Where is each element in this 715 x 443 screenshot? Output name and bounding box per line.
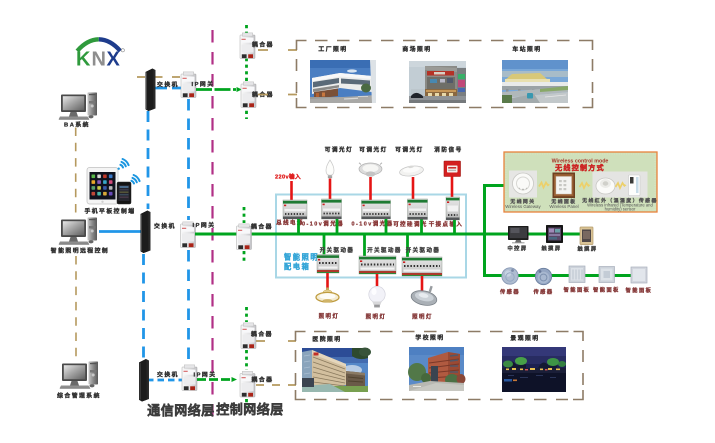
svg-text:N: N	[92, 48, 106, 70]
svg-text:耦合器: 耦合器	[252, 41, 274, 49]
svg-text:耦合器: 耦合器	[251, 330, 273, 338]
svg-text:消防信号: 消防信号	[434, 146, 462, 154]
svg-text:通信网络层: 通信网络层	[147, 403, 215, 418]
svg-text:交换机: 交换机	[154, 222, 176, 230]
svg-text:耦合器: 耦合器	[251, 223, 273, 231]
svg-text:工厂照明: 工厂照明	[318, 45, 347, 53]
svg-text:智能照明: 智能照明	[284, 253, 319, 262]
svg-text:智能面板: 智能面板	[593, 286, 620, 294]
svg-text:商场照明: 商场照明	[402, 45, 431, 53]
svg-text:无线控制方式: 无线控制方式	[554, 163, 605, 172]
svg-text:开关驱动器: 开关驱动器	[406, 246, 440, 254]
svg-text:照明灯: 照明灯	[319, 312, 340, 320]
svg-text:humidity) sensor: humidity) sensor	[605, 207, 636, 212]
svg-text:车站照明: 车站照明	[512, 45, 541, 53]
svg-text:220v输入: 220v输入	[275, 173, 301, 181]
svg-text:配电箱: 配电箱	[284, 262, 310, 271]
svg-text:耦合器: 耦合器	[252, 376, 274, 384]
svg-text:中控屏: 中控屏	[507, 244, 527, 252]
svg-text:手机平板控制端: 手机平板控制端	[84, 207, 135, 215]
svg-text:照明灯: 照明灯	[366, 313, 387, 321]
svg-text:触摸屏: 触摸屏	[576, 245, 597, 253]
svg-text:交换机: 交换机	[157, 81, 179, 89]
svg-text:干接点输入: 干接点输入	[429, 220, 463, 228]
svg-text:开关驱动器: 开关驱动器	[367, 246, 401, 254]
svg-text:医院照明: 医院照明	[312, 335, 341, 343]
svg-text:智能照明远程控制: 智能照明远程控制	[50, 247, 109, 255]
svg-text:IP网关: IP网关	[191, 80, 214, 88]
svg-text:Wireless Panel: Wireless Panel	[549, 204, 578, 209]
svg-text:传感器: 传感器	[499, 288, 520, 296]
svg-text:Wireless control mode: Wireless control mode	[552, 159, 609, 165]
svg-text:Wireless Gateway: Wireless Gateway	[505, 204, 541, 209]
svg-text:IP网关: IP网关	[192, 221, 215, 229]
svg-text:学校照明: 学校照明	[415, 334, 444, 342]
svg-text:BA系统: BA系统	[64, 121, 90, 129]
svg-text:开关驱动器: 开关驱动器	[320, 246, 354, 254]
svg-text:可调光灯: 可调光灯	[395, 146, 423, 154]
svg-text:照明灯: 照明灯	[412, 313, 433, 321]
svg-text:交换机: 交换机	[157, 371, 179, 379]
svg-text:智能面板: 智能面板	[626, 286, 653, 294]
svg-text:K: K	[76, 48, 91, 70]
svg-text:综合管理系统: 综合管理系统	[57, 392, 101, 400]
svg-text:智能面板: 智能面板	[564, 286, 591, 294]
svg-text:可调光灯: 可调光灯	[359, 146, 387, 154]
svg-text:景观照明: 景观照明	[509, 334, 539, 342]
svg-text:控制网络层: 控制网络层	[216, 402, 284, 417]
svg-text:触摸屏: 触摸屏	[540, 244, 561, 252]
svg-text:传感器: 传感器	[532, 288, 553, 296]
svg-text:X: X	[107, 48, 121, 70]
svg-text:IP网关: IP网关	[193, 371, 216, 379]
svg-text:可调光灯: 可调光灯	[325, 146, 353, 154]
